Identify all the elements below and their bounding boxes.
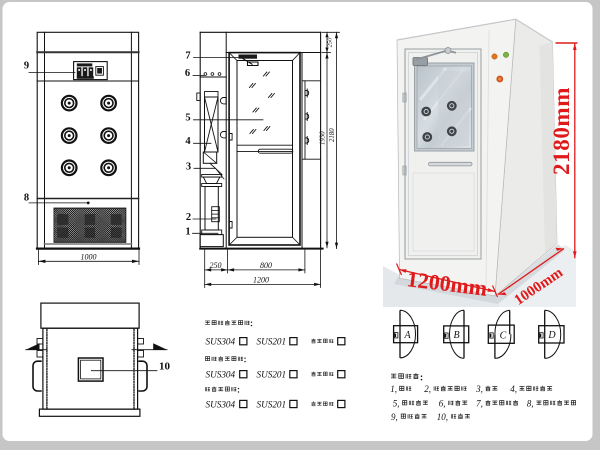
svg-text:250: 250 [210, 261, 222, 270]
svg-text:8,: 8, [527, 399, 534, 409]
svg-text:C: C [500, 331, 507, 342]
svg-text:9: 9 [24, 61, 29, 72]
svg-text:SUS304: SUS304 [206, 370, 236, 380]
svg-text:10: 10 [159, 361, 171, 373]
svg-text:SUS201: SUS201 [257, 370, 287, 380]
svg-text:250: 250 [327, 37, 334, 48]
svg-text:7,: 7, [476, 399, 483, 409]
svg-text:8: 8 [24, 193, 29, 204]
svg-text:1000: 1000 [81, 253, 97, 262]
svg-text:SUS304: SUS304 [206, 399, 236, 409]
svg-text:B: B [453, 330, 459, 341]
svg-text:1930: 1930 [320, 131, 327, 145]
svg-text:D: D [547, 330, 556, 341]
svg-text:1200: 1200 [253, 276, 269, 285]
svg-text:SUS304: SUS304 [206, 337, 236, 347]
svg-text:2180mm: 2180mm [549, 87, 574, 175]
svg-text:6,: 6, [439, 399, 446, 409]
svg-text:4,: 4, [510, 384, 517, 394]
svg-text:SUS201: SUS201 [257, 337, 287, 347]
svg-text:2,: 2, [424, 384, 431, 394]
svg-text:A: A [403, 330, 411, 341]
svg-text:3: 3 [186, 162, 191, 173]
svg-text:4: 4 [185, 136, 191, 147]
svg-text:5,: 5, [393, 399, 400, 409]
svg-text:SUS201: SUS201 [257, 399, 287, 409]
svg-text:2: 2 [186, 212, 191, 223]
svg-text:2180: 2180 [329, 128, 336, 142]
svg-text:1: 1 [185, 227, 190, 238]
svg-text:5: 5 [185, 113, 190, 124]
svg-text:6: 6 [185, 68, 190, 79]
svg-text:800: 800 [260, 261, 272, 270]
svg-text:10,: 10, [437, 412, 448, 422]
svg-text:1,: 1, [390, 384, 397, 394]
svg-text:3,: 3, [475, 384, 483, 394]
svg-text:9,: 9, [391, 412, 398, 422]
svg-text:7: 7 [185, 51, 190, 62]
